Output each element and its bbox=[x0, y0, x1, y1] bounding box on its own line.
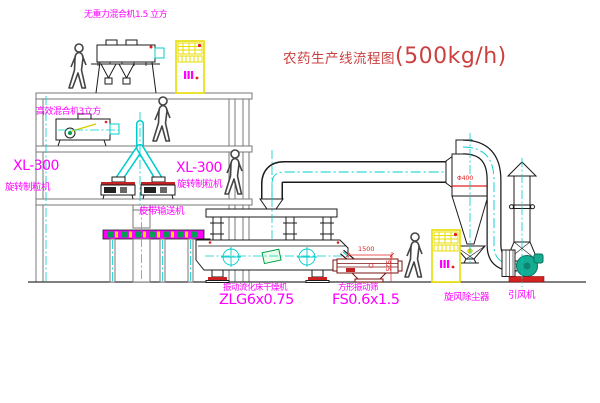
cyclone-diameter-dimension: Φ400 bbox=[457, 176, 473, 182]
vibrating-sieve bbox=[333, 252, 402, 282]
page-title: 农药生产线流程图(500kg/h) bbox=[283, 44, 507, 69]
title-text: 农药生产线流程图 bbox=[283, 51, 395, 67]
belt-conveyor bbox=[103, 230, 210, 282]
sieve-height-dimension: 525 bbox=[384, 260, 390, 271]
sieve-model-label: FS0.6x1.5 bbox=[332, 293, 400, 308]
granulator-left-model-label: XL-300 bbox=[13, 159, 59, 173]
granulator-mid-model-label: XL-300 bbox=[176, 161, 222, 175]
top-mixer-label: 无重力混合机1.5 立方 bbox=[84, 11, 167, 20]
control-cabinet bbox=[432, 230, 460, 282]
mid-mixer-label: 高效混合机3立方 bbox=[36, 108, 101, 117]
granulator-mid-name-label: 旋转制粒机 bbox=[177, 180, 222, 190]
person-figure bbox=[153, 97, 170, 141]
fan-label: 引风机 bbox=[508, 291, 535, 301]
rotary-granulator bbox=[141, 177, 175, 199]
gravity-free-mixer bbox=[91, 40, 164, 93]
sieve-length-dimension: 1500 bbox=[358, 246, 375, 253]
rotary-granulator bbox=[101, 177, 135, 199]
cyclone-label: 旋风除尘器 bbox=[444, 293, 489, 303]
person-figure bbox=[69, 44, 86, 88]
person-figure bbox=[405, 233, 422, 277]
belt-conveyor-label: 皮带输送机 bbox=[139, 207, 184, 217]
process-flow-drawing: 无重力混合机1.5 立方 农药生产线流程图(500kg/h) 高效混合机3立方 … bbox=[0, 0, 600, 403]
fluid-bed-dryer bbox=[196, 199, 348, 283]
dryer-model-label: ZLG6x0.75 bbox=[219, 293, 294, 308]
granulator-left-name-label: 旋转制粒机 bbox=[5, 183, 50, 193]
control-cabinet bbox=[176, 41, 204, 93]
title-capacity: (500kg/h) bbox=[395, 44, 507, 69]
main-exhaust-duct bbox=[272, 153, 457, 200]
